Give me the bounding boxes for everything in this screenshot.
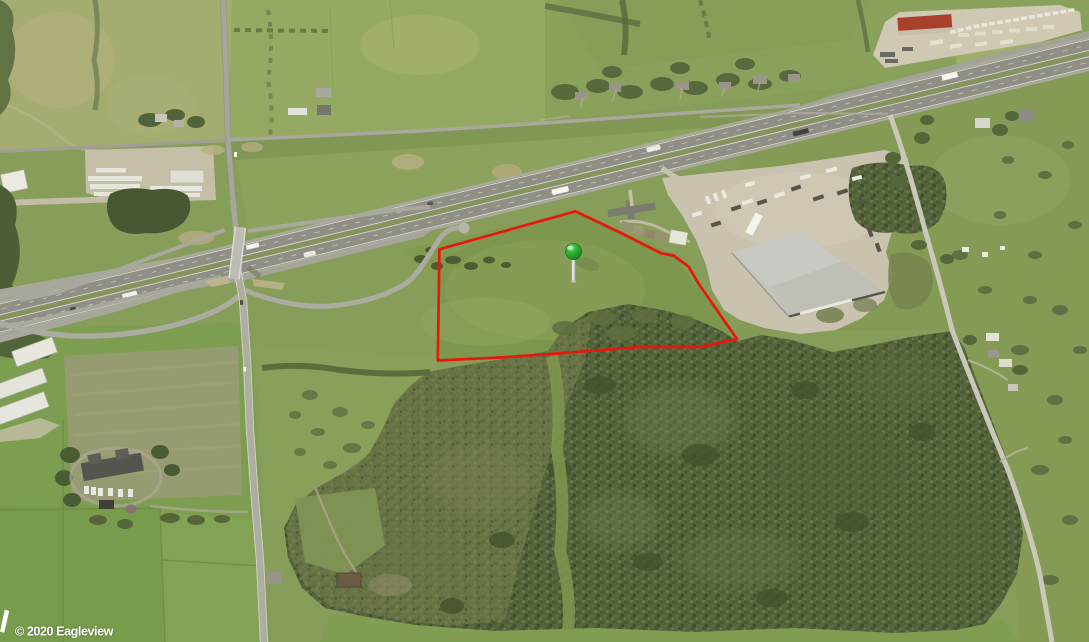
svg-text:© 2020 Eagleview: © 2020 Eagleview — [15, 625, 114, 639]
